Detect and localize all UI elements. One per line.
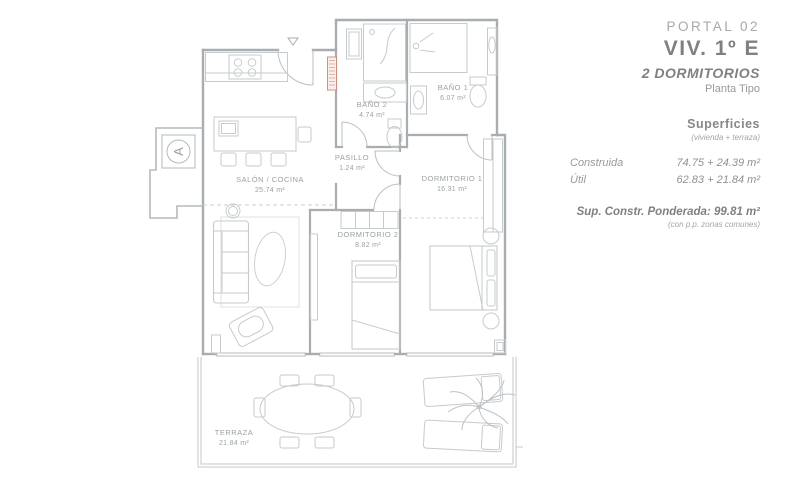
weighted-surface: Sup. Constr. Ponderada: 99.81 m² bbox=[570, 206, 760, 218]
washbasin bbox=[488, 28, 498, 75]
rug-blob bbox=[251, 230, 290, 288]
label-pasillo: PASILLO 1.24 m² bbox=[335, 153, 369, 173]
living-room-furniture bbox=[212, 204, 318, 353]
sun-lounger bbox=[423, 373, 503, 406]
kitchen-furniture bbox=[206, 53, 312, 167]
pillow bbox=[356, 265, 397, 278]
entrance-marker-icon bbox=[288, 38, 298, 45]
bedrooms-subtitle: 2 DORMITORIOS bbox=[642, 65, 760, 81]
armchair bbox=[228, 306, 274, 348]
surfaces-title: Superficies bbox=[570, 117, 760, 131]
label-dormitorio2: DORMITORIO 2 8.82 m² bbox=[338, 230, 399, 250]
sofa bbox=[214, 221, 249, 303]
lift-letter: A bbox=[171, 147, 186, 156]
label-terraza: TERRAZA 21.84 m² bbox=[215, 428, 254, 448]
unit-title: VIV. 1º E bbox=[642, 37, 760, 61]
lift: A bbox=[162, 135, 195, 168]
stove-icon bbox=[229, 55, 261, 79]
pillow bbox=[487, 280, 495, 306]
tv-unit bbox=[311, 234, 318, 320]
terrace-furniture bbox=[254, 373, 515, 452]
installation-shaft bbox=[328, 57, 337, 90]
surfaces-subtitle: (vivienda + terraza) bbox=[570, 133, 760, 142]
plan-type: Planta Tipo bbox=[642, 83, 760, 95]
single-bed bbox=[352, 261, 400, 349]
bidet bbox=[411, 86, 427, 114]
dining-table bbox=[260, 384, 354, 434]
label-dormitorio1: DORMITORIO 1 16.31 m² bbox=[422, 174, 483, 194]
bedroom1-furniture bbox=[403, 139, 506, 353]
label-bano2: BAÑO 2 4.74 m² bbox=[357, 100, 388, 120]
toilet bbox=[470, 77, 486, 85]
weighted-note: (con p.p. zonas comunes) bbox=[570, 220, 760, 229]
bathroom2-fixtures bbox=[347, 24, 407, 148]
label-bano1: BAÑO 1 6.07 m² bbox=[438, 83, 469, 103]
floor-plan-sheet: A bbox=[0, 0, 788, 477]
bedside-table bbox=[483, 228, 499, 244]
label-salon: SALÓN / COCINA 25.74 m² bbox=[236, 175, 304, 195]
bedside-table bbox=[483, 313, 499, 329]
surfaces-block: Superficies (vivienda + terraza) Constru… bbox=[570, 117, 760, 229]
pillow bbox=[487, 250, 495, 276]
surface-row-util: Útil 62.83 + 21.84 m² bbox=[570, 172, 760, 189]
windows bbox=[216, 353, 494, 356]
title-block: PORTAL 02 VIV. 1º E 2 DORMITORIOS Planta… bbox=[642, 19, 760, 95]
surface-row-construida: Construida 74.75 + 24.39 m² bbox=[570, 155, 760, 172]
portal-title: PORTAL 02 bbox=[642, 19, 760, 34]
